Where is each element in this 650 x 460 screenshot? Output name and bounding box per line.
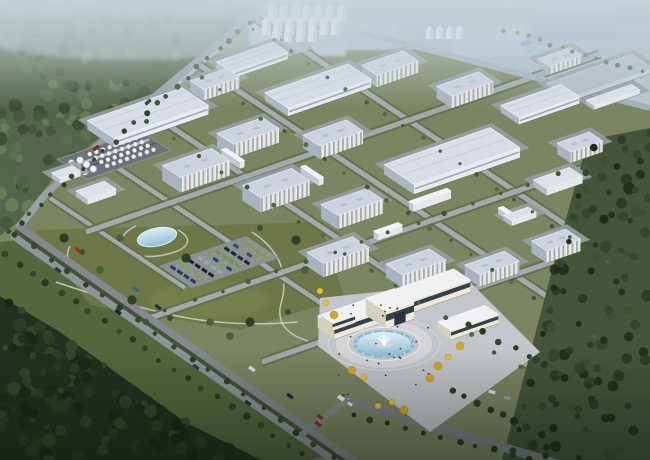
tree-clump bbox=[5, 198, 19, 212]
park-tree bbox=[116, 234, 124, 242]
tree bbox=[83, 282, 89, 288]
tree-clump bbox=[600, 241, 611, 252]
tree bbox=[547, 307, 554, 314]
tree bbox=[540, 331, 546, 337]
tree-clump bbox=[18, 124, 28, 134]
person bbox=[350, 313, 352, 315]
tree bbox=[617, 135, 626, 144]
person bbox=[375, 343, 377, 345]
jet-dot bbox=[394, 331, 395, 332]
tree-clump bbox=[546, 323, 555, 332]
tree bbox=[427, 226, 432, 231]
tree bbox=[578, 294, 587, 303]
tree bbox=[557, 260, 565, 268]
tree bbox=[274, 269, 278, 273]
tree bbox=[531, 210, 534, 213]
person bbox=[384, 311, 386, 313]
tree bbox=[417, 222, 421, 226]
tree-clump bbox=[41, 178, 49, 186]
tree-clump bbox=[621, 274, 629, 282]
storage-tank bbox=[133, 142, 137, 146]
tree bbox=[465, 321, 471, 327]
storage-tank bbox=[100, 154, 104, 158]
tree bbox=[605, 259, 609, 263]
tree bbox=[605, 306, 613, 314]
tree bbox=[471, 202, 475, 206]
person bbox=[388, 314, 390, 316]
storage-tank-large bbox=[77, 157, 84, 164]
tree bbox=[495, 187, 499, 191]
tree bbox=[116, 329, 121, 334]
tree-clump bbox=[618, 289, 625, 296]
tree-clump bbox=[616, 198, 627, 209]
tree bbox=[632, 187, 639, 194]
tree bbox=[609, 152, 614, 157]
tree-clump bbox=[630, 253, 638, 261]
jet-center bbox=[382, 342, 385, 345]
storage-tank-large bbox=[83, 161, 90, 168]
tree bbox=[1, 251, 8, 258]
bush bbox=[200, 276, 204, 280]
bush bbox=[254, 257, 258, 261]
aerial-rendering-industrial-park bbox=[0, 0, 650, 460]
tree bbox=[282, 129, 286, 133]
scene-canvas bbox=[0, 0, 650, 460]
tree bbox=[322, 157, 326, 161]
storage-tank bbox=[105, 164, 109, 168]
tree bbox=[30, 271, 36, 277]
person bbox=[367, 308, 369, 310]
tree bbox=[42, 279, 49, 286]
tree bbox=[153, 331, 157, 335]
tree bbox=[297, 220, 301, 224]
tree bbox=[6, 229, 11, 234]
tree bbox=[245, 279, 250, 284]
storage-tank bbox=[132, 155, 136, 159]
tree bbox=[17, 262, 24, 269]
tree-clump bbox=[575, 202, 581, 208]
tree bbox=[304, 259, 309, 264]
tree bbox=[39, 203, 43, 207]
tree-clump bbox=[623, 305, 632, 314]
tree bbox=[48, 192, 53, 197]
tree-clump bbox=[608, 211, 615, 218]
tree bbox=[566, 239, 571, 244]
jet-dot bbox=[357, 338, 358, 339]
tree bbox=[163, 309, 167, 313]
tree bbox=[600, 336, 608, 344]
tree bbox=[245, 185, 250, 190]
person bbox=[389, 307, 391, 309]
storage-tank bbox=[112, 161, 116, 165]
tree bbox=[614, 163, 621, 170]
tree-clump bbox=[56, 117, 62, 123]
tree-clump bbox=[640, 228, 650, 238]
tree bbox=[532, 296, 536, 300]
tree bbox=[131, 120, 136, 125]
tree-clump bbox=[618, 212, 628, 222]
tree bbox=[343, 252, 346, 255]
park-tree bbox=[226, 332, 234, 340]
tree bbox=[509, 279, 514, 284]
person bbox=[382, 315, 384, 317]
tree bbox=[303, 142, 308, 147]
tree-clump bbox=[630, 206, 641, 217]
tree-clump bbox=[0, 216, 13, 229]
tree bbox=[469, 253, 472, 256]
tree bbox=[582, 164, 586, 168]
tree bbox=[130, 336, 137, 343]
jet-dot bbox=[363, 334, 364, 335]
tree bbox=[443, 315, 448, 320]
tree-clump bbox=[43, 156, 52, 165]
haze-overlay bbox=[0, 0, 650, 108]
tree bbox=[92, 157, 96, 161]
tree bbox=[512, 198, 516, 202]
person bbox=[341, 312, 343, 314]
tree bbox=[220, 170, 224, 174]
storage-tank bbox=[140, 140, 144, 144]
tree bbox=[495, 339, 502, 346]
park-tree bbox=[291, 235, 300, 244]
person bbox=[427, 327, 429, 329]
tree bbox=[342, 171, 345, 174]
tree-clump bbox=[13, 110, 25, 122]
park-tree bbox=[59, 233, 68, 242]
tree bbox=[569, 213, 576, 220]
tree-clump bbox=[587, 342, 594, 349]
jet-dot bbox=[354, 343, 355, 344]
tree-clump bbox=[600, 157, 609, 166]
park-tree bbox=[257, 225, 263, 231]
storage-tank bbox=[113, 155, 117, 159]
tree-clump bbox=[66, 119, 73, 126]
tree bbox=[575, 193, 581, 199]
tree bbox=[144, 119, 149, 124]
park-tree bbox=[245, 317, 254, 326]
park-tree bbox=[181, 253, 190, 262]
park-tree bbox=[127, 295, 136, 304]
storage-tank bbox=[139, 146, 143, 150]
tree bbox=[113, 139, 119, 145]
tree bbox=[490, 268, 494, 272]
tree bbox=[599, 215, 608, 224]
tree bbox=[320, 233, 324, 237]
bush bbox=[241, 248, 245, 252]
tree bbox=[193, 297, 198, 302]
person bbox=[386, 314, 388, 316]
storage-tank-large bbox=[90, 166, 97, 173]
tree bbox=[12, 232, 18, 238]
tree-clump bbox=[1, 123, 10, 132]
tree bbox=[221, 290, 224, 293]
storage-tank bbox=[99, 160, 103, 164]
tree bbox=[59, 290, 66, 297]
tree bbox=[479, 328, 486, 335]
bush bbox=[207, 253, 211, 257]
tree bbox=[333, 251, 337, 255]
tree-clump bbox=[33, 321, 46, 334]
tree bbox=[606, 189, 612, 195]
tree-clump bbox=[560, 288, 566, 294]
tree bbox=[474, 172, 479, 177]
tree bbox=[458, 162, 461, 165]
storage-tank bbox=[118, 159, 122, 163]
storage-tank bbox=[127, 144, 131, 148]
tree bbox=[637, 158, 644, 165]
tree-clump bbox=[10, 151, 18, 159]
tree bbox=[73, 298, 79, 304]
tree bbox=[593, 335, 597, 339]
storage-tank bbox=[107, 151, 111, 155]
jet-dot bbox=[412, 343, 413, 344]
tree bbox=[469, 332, 474, 337]
storage-tank bbox=[146, 144, 150, 148]
person bbox=[364, 327, 366, 329]
storage-tank bbox=[113, 149, 117, 153]
tree bbox=[450, 239, 453, 242]
tree-clump bbox=[18, 334, 27, 343]
tree bbox=[556, 171, 561, 176]
tree-clump bbox=[28, 334, 38, 344]
storage-tank bbox=[138, 152, 142, 156]
tree-clump bbox=[591, 253, 600, 262]
storage-tank bbox=[145, 150, 149, 154]
park-tree bbox=[285, 309, 291, 315]
autumn-tree bbox=[323, 300, 329, 306]
person bbox=[374, 319, 376, 321]
storage-tank bbox=[119, 153, 123, 157]
tree bbox=[81, 167, 85, 171]
person bbox=[352, 304, 354, 306]
tree bbox=[365, 185, 370, 190]
tree-clump bbox=[624, 251, 630, 257]
tree bbox=[592, 242, 598, 248]
tree bbox=[384, 198, 389, 203]
tree-clump bbox=[582, 185, 591, 194]
tree bbox=[439, 149, 442, 152]
tree bbox=[638, 144, 643, 149]
tree bbox=[417, 301, 420, 304]
tree bbox=[613, 279, 619, 285]
person bbox=[350, 336, 352, 338]
tree bbox=[122, 128, 127, 133]
vignette-overlay bbox=[0, 348, 650, 460]
tree bbox=[369, 268, 374, 273]
tree-clump bbox=[622, 146, 629, 153]
tree-clump bbox=[7, 170, 15, 178]
tree-clump bbox=[18, 306, 26, 314]
tree bbox=[627, 218, 633, 224]
tree-clump bbox=[27, 124, 37, 134]
tree bbox=[62, 183, 67, 188]
tree bbox=[588, 248, 591, 251]
tree bbox=[588, 267, 595, 274]
tree bbox=[406, 211, 411, 216]
tree bbox=[69, 174, 75, 180]
tree bbox=[421, 135, 426, 140]
tree-clump bbox=[624, 332, 633, 341]
tree bbox=[442, 211, 447, 216]
tree bbox=[84, 308, 91, 315]
storage-tank bbox=[88, 152, 92, 156]
tree bbox=[271, 203, 276, 208]
tree-clump bbox=[43, 334, 55, 346]
tree-clump bbox=[63, 135, 73, 145]
jet-dot bbox=[404, 334, 405, 335]
tree bbox=[259, 117, 263, 121]
tree bbox=[551, 285, 557, 291]
tree-clump bbox=[35, 130, 42, 137]
tree bbox=[172, 137, 176, 141]
storage-tank bbox=[126, 151, 130, 155]
bush bbox=[220, 262, 224, 266]
tree-clump bbox=[42, 119, 49, 126]
tree-clump bbox=[5, 298, 14, 307]
tree-clump bbox=[589, 205, 597, 213]
tree bbox=[383, 112, 387, 116]
person bbox=[408, 328, 410, 330]
tree bbox=[618, 247, 624, 253]
storage-tank bbox=[106, 158, 110, 162]
tree bbox=[27, 212, 31, 216]
tree bbox=[550, 224, 555, 229]
storage-tank bbox=[120, 147, 124, 151]
tree bbox=[568, 235, 572, 239]
tree bbox=[101, 149, 105, 153]
tree-clump bbox=[46, 126, 56, 136]
storage-tank bbox=[151, 148, 155, 152]
tree bbox=[100, 292, 105, 297]
park-tree bbox=[143, 319, 149, 325]
tree-clump bbox=[630, 320, 640, 330]
tree bbox=[31, 243, 37, 249]
tree-clump bbox=[633, 150, 641, 158]
autumn-tree bbox=[330, 311, 338, 319]
jet-dot bbox=[383, 330, 384, 331]
jet-dot bbox=[372, 331, 373, 332]
tree bbox=[499, 192, 502, 195]
tree bbox=[135, 317, 141, 323]
park-tree bbox=[301, 266, 309, 274]
tree bbox=[197, 154, 201, 158]
tree bbox=[49, 258, 54, 263]
tree-clump bbox=[15, 188, 24, 197]
person bbox=[396, 308, 398, 310]
park-tree bbox=[96, 266, 104, 274]
tree-clump bbox=[636, 170, 645, 179]
tree bbox=[590, 144, 598, 152]
park-tree bbox=[206, 318, 214, 326]
tree bbox=[583, 170, 589, 176]
person bbox=[358, 321, 360, 323]
tree bbox=[144, 110, 150, 116]
tree bbox=[394, 284, 397, 287]
tree-clump bbox=[13, 318, 26, 331]
storage-tank bbox=[132, 148, 136, 152]
park-tree bbox=[167, 315, 173, 321]
tree-clump bbox=[17, 175, 31, 189]
autumn-tree bbox=[317, 288, 323, 294]
person bbox=[380, 304, 382, 306]
tree bbox=[525, 183, 530, 188]
tree bbox=[386, 230, 390, 234]
tree bbox=[401, 124, 404, 127]
person bbox=[397, 326, 399, 328]
jet-dot bbox=[410, 338, 411, 339]
tree bbox=[576, 321, 582, 327]
person bbox=[415, 341, 417, 343]
bush bbox=[187, 267, 191, 271]
tree-clump bbox=[33, 110, 43, 120]
tree bbox=[64, 268, 70, 274]
storage-tank bbox=[125, 157, 129, 161]
tree bbox=[360, 240, 364, 244]
tree-clump bbox=[597, 173, 606, 182]
storage-tank bbox=[107, 145, 111, 149]
tree bbox=[19, 220, 24, 225]
tree bbox=[102, 318, 108, 324]
